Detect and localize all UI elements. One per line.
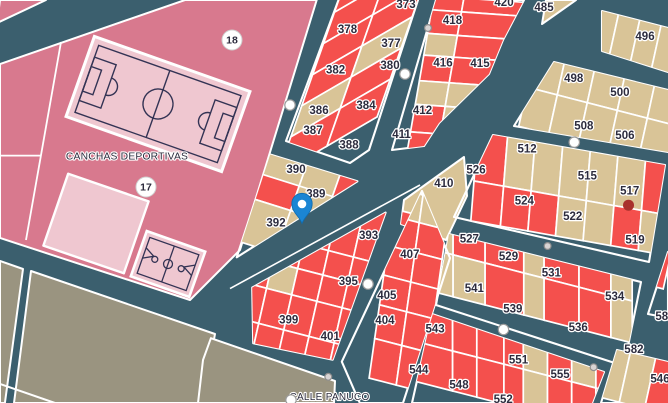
- svg-text:392: 392: [266, 218, 285, 230]
- svg-text:498: 498: [564, 73, 584, 85]
- svg-text:500: 500: [610, 87, 629, 99]
- svg-text:582: 582: [624, 344, 643, 356]
- svg-text:531: 531: [542, 268, 562, 280]
- svg-text:548: 548: [449, 380, 469, 392]
- svg-text:508: 508: [574, 120, 594, 132]
- svg-text:407: 407: [400, 249, 419, 261]
- svg-text:388: 388: [339, 140, 359, 152]
- svg-text:393: 393: [359, 230, 378, 242]
- svg-text:395: 395: [339, 276, 359, 288]
- svg-text:399: 399: [279, 314, 298, 326]
- svg-text:405: 405: [377, 290, 397, 302]
- svg-text:CALLE PANUCO: CALLE PANUCO: [289, 392, 369, 403]
- svg-text:512: 512: [518, 143, 537, 155]
- svg-text:418: 418: [443, 15, 463, 27]
- svg-text:582: 582: [655, 311, 668, 323]
- svg-text:18: 18: [226, 34, 238, 46]
- svg-text:527: 527: [460, 233, 479, 245]
- svg-text:515: 515: [578, 171, 598, 183]
- svg-text:534: 534: [605, 291, 625, 303]
- svg-text:415: 415: [470, 58, 490, 70]
- svg-text:420: 420: [494, 0, 513, 9]
- svg-text:378: 378: [338, 24, 358, 36]
- svg-text:387: 387: [303, 125, 322, 137]
- svg-text:382: 382: [326, 64, 345, 76]
- svg-text:552: 552: [494, 394, 513, 403]
- svg-text:543: 543: [426, 324, 445, 336]
- svg-text:404: 404: [375, 315, 395, 327]
- svg-text:539: 539: [503, 304, 522, 316]
- svg-text:410: 410: [434, 178, 453, 190]
- svg-text:544: 544: [409, 365, 429, 377]
- svg-text:390: 390: [286, 164, 305, 176]
- svg-text:411: 411: [392, 129, 411, 141]
- svg-text:17: 17: [140, 181, 152, 193]
- svg-text:380: 380: [380, 60, 399, 72]
- svg-text:536: 536: [569, 322, 588, 334]
- svg-text:485: 485: [534, 2, 554, 14]
- svg-text:546: 546: [650, 374, 668, 386]
- svg-text:416: 416: [433, 58, 452, 70]
- svg-text:CANCHAS DEPORTIVAS: CANCHAS DEPORTIVAS: [66, 152, 188, 163]
- svg-text:401: 401: [321, 331, 341, 343]
- svg-text:377: 377: [381, 38, 400, 50]
- svg-text:555: 555: [551, 369, 571, 381]
- svg-text:384: 384: [356, 100, 376, 112]
- svg-text:412: 412: [413, 105, 432, 117]
- svg-text:386: 386: [309, 105, 328, 117]
- svg-text:522: 522: [563, 211, 582, 223]
- svg-text:526: 526: [466, 165, 485, 177]
- svg-text:551: 551: [509, 354, 529, 366]
- svg-text:529: 529: [499, 251, 518, 263]
- svg-text:517: 517: [620, 186, 639, 198]
- svg-text:373: 373: [396, 0, 415, 11]
- svg-text:506: 506: [615, 130, 634, 142]
- svg-text:524: 524: [515, 196, 535, 208]
- svg-text:519: 519: [625, 235, 644, 247]
- svg-text:541: 541: [465, 283, 485, 295]
- svg-text:496: 496: [635, 31, 654, 43]
